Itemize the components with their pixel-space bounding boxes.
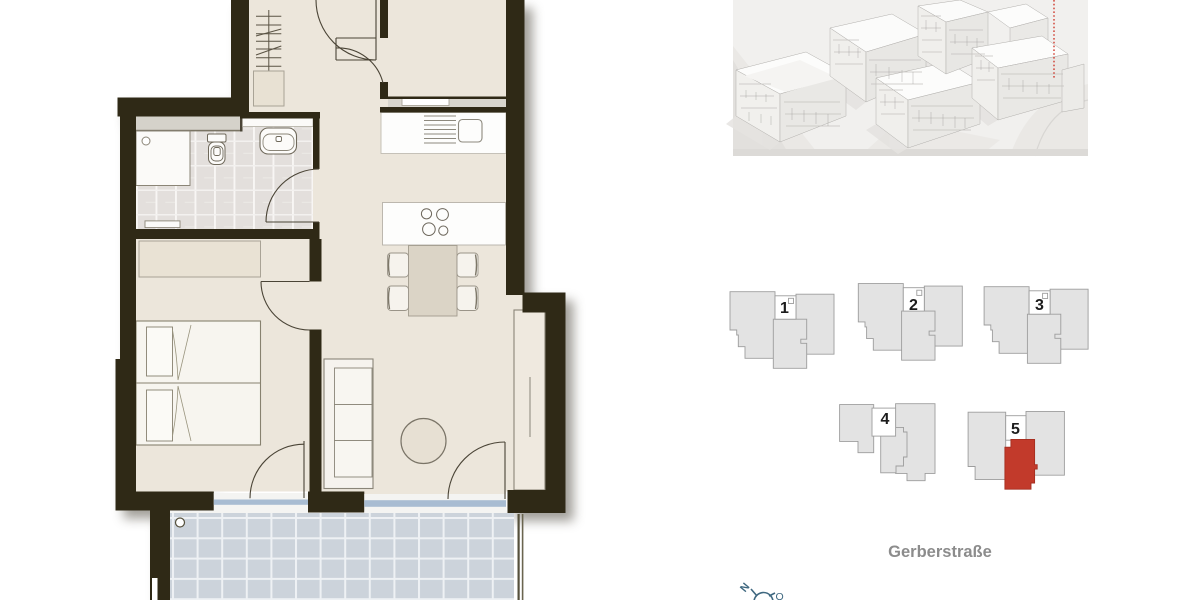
svg-text:4: 4	[881, 411, 890, 428]
svg-text:2: 2	[909, 297, 918, 314]
svg-text:O: O	[776, 591, 784, 600]
svg-text:1: 1	[780, 300, 789, 317]
svg-text:3: 3	[1035, 297, 1044, 314]
svg-text:5: 5	[1011, 421, 1020, 438]
svg-text:Gerberstraße: Gerberstraße	[888, 543, 992, 561]
